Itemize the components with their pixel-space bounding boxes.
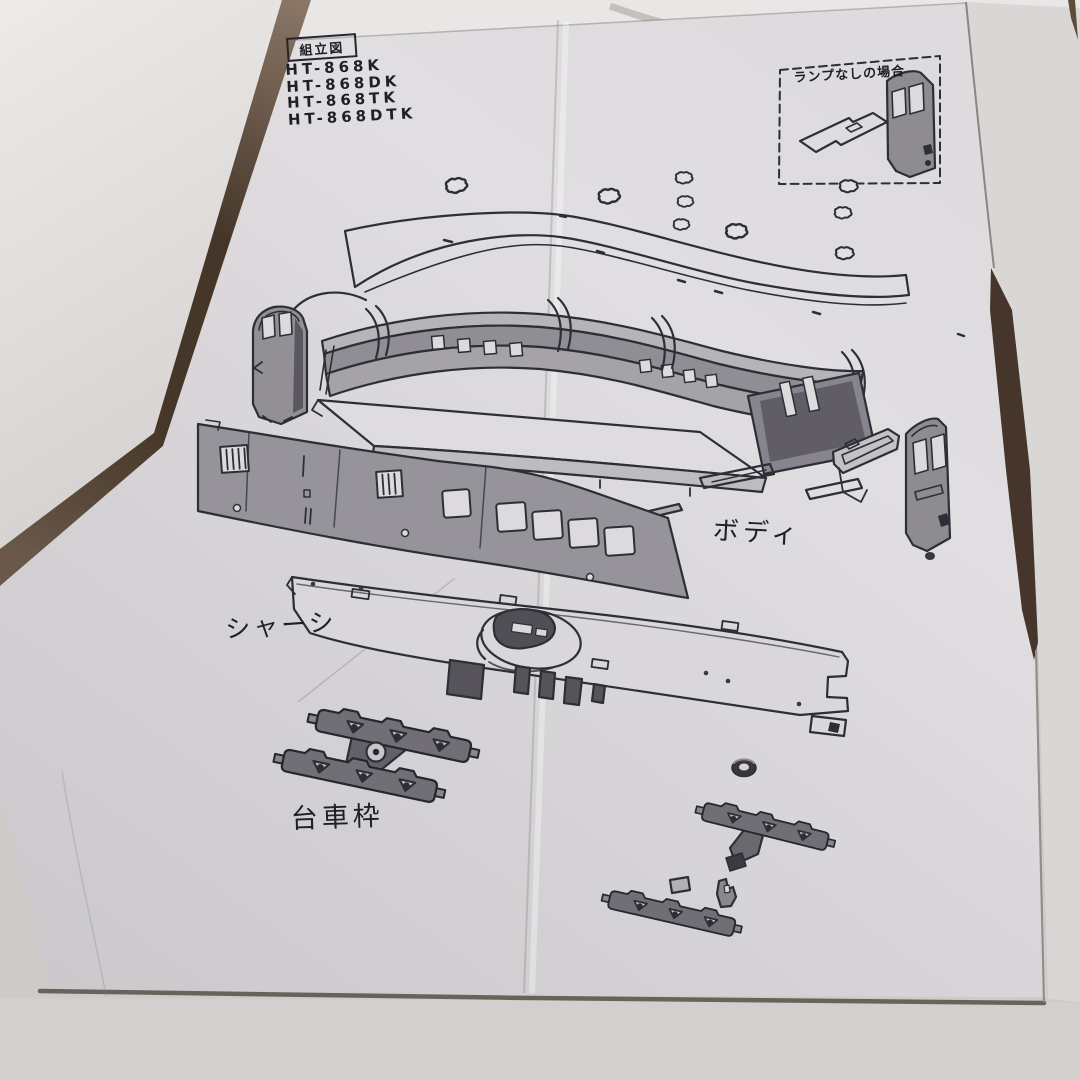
assembly-diagram-artwork — [0, 0, 1080, 1080]
washer-part-drawing — [732, 759, 756, 776]
model-number-list: HT-868K HT-868DK HT-868TK HT-868DTK — [285, 55, 417, 128]
sheet-title: 組立図 — [299, 36, 345, 58]
part-label-truck-frame: 台車枠 — [290, 794, 384, 836]
part-label-body: ボディ — [712, 510, 802, 552]
photo-of-assembly-instruction-sheet: 組立図 HT-868K HT-868DK HT-868TK HT-868DTK … — [0, 0, 1080, 1080]
